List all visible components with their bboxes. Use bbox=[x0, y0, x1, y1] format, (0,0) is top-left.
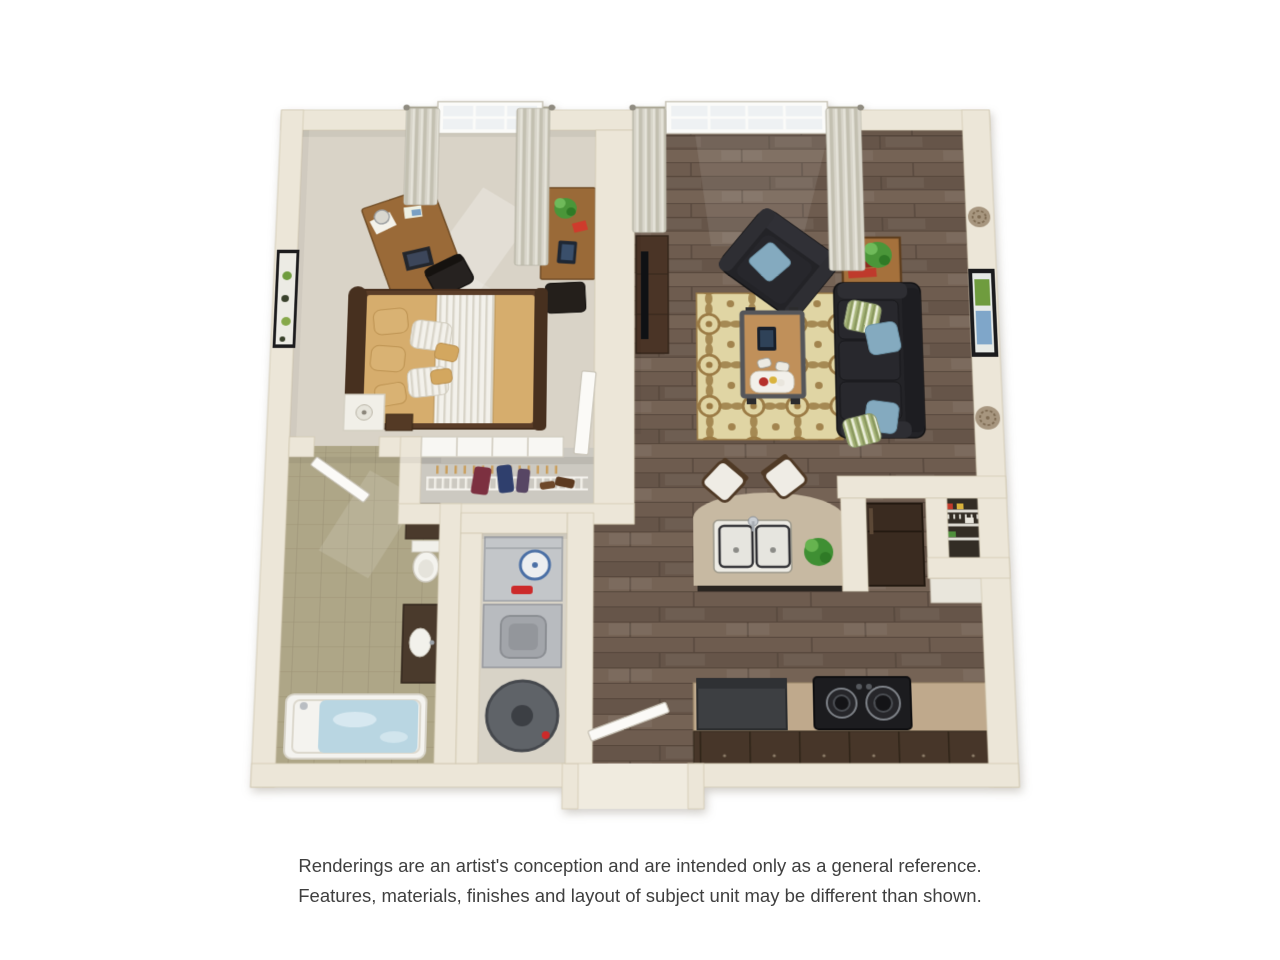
hardwood-floor-main bbox=[624, 122, 999, 768]
wood-side-stand bbox=[386, 414, 413, 430]
curtain-panel bbox=[826, 108, 865, 270]
wall-bedroom-south-a bbox=[289, 437, 315, 457]
toilet bbox=[411, 541, 441, 582]
detergent bbox=[511, 586, 533, 594]
tv-console bbox=[636, 236, 668, 353]
disclaimer-line-2: Features, materials, finishes and layout… bbox=[0, 881, 1280, 911]
kitchen-counter-run bbox=[693, 677, 994, 764]
hanging-clothes-navy bbox=[496, 464, 514, 493]
wall-bedroom-living bbox=[594, 130, 635, 524]
disclaimer-line-1: Renderings are an artist's conception an… bbox=[0, 851, 1280, 881]
double-sink bbox=[713, 517, 791, 573]
sofa bbox=[834, 283, 926, 449]
closet-sliding-doors bbox=[421, 437, 563, 457]
disclaimer: Renderings are an artist's conception an… bbox=[0, 851, 1280, 911]
nightstand bbox=[343, 394, 384, 430]
wall-utility-north bbox=[461, 513, 568, 533]
living-window bbox=[666, 102, 828, 134]
wall-pantry-south bbox=[928, 558, 1011, 579]
wall-kitchen-return bbox=[841, 498, 869, 591]
page: Renderings are an artist's conception an… bbox=[0, 0, 1280, 960]
vanity-sink bbox=[409, 628, 431, 657]
game-controller bbox=[775, 361, 790, 372]
tan-pillow bbox=[369, 345, 406, 372]
base-cabinets bbox=[694, 731, 995, 764]
wall-south-left bbox=[251, 764, 573, 788]
porch-stub-left bbox=[562, 764, 578, 809]
curtain-panel bbox=[514, 108, 550, 265]
curtain-panel bbox=[633, 108, 667, 232]
wall-utility-west bbox=[456, 533, 482, 763]
entry-porch-floor bbox=[562, 764, 704, 809]
blue-pillow bbox=[864, 321, 902, 356]
wall-utility-east bbox=[565, 513, 593, 764]
breakfast-island bbox=[693, 493, 846, 592]
utility-appliances bbox=[481, 537, 563, 751]
footboard bbox=[533, 288, 548, 430]
washer bbox=[484, 537, 563, 601]
living-wall-art bbox=[968, 269, 998, 357]
floor-plan-render bbox=[0, 68, 1280, 953]
wall-closet-west bbox=[399, 437, 422, 506]
tv-screen bbox=[641, 251, 649, 339]
dryer bbox=[482, 605, 561, 668]
bathtub bbox=[284, 694, 427, 758]
bath-water bbox=[318, 700, 419, 753]
vanity bbox=[401, 605, 438, 683]
refrigerator bbox=[866, 504, 925, 586]
hanging-clothes-purple bbox=[516, 468, 531, 493]
tan-pillow bbox=[373, 307, 409, 335]
accent-pillow bbox=[430, 368, 453, 385]
porch-stub-right bbox=[688, 764, 704, 809]
coffee-table bbox=[742, 307, 804, 404]
water-heater bbox=[486, 681, 558, 751]
wall-south-right bbox=[694, 764, 1020, 788]
wall-kitchen-north bbox=[837, 476, 1006, 498]
bedroom-wall-art bbox=[273, 250, 300, 348]
cooktop bbox=[813, 677, 911, 729]
secondary-desk-chair bbox=[545, 282, 586, 314]
curtain-panel bbox=[404, 108, 440, 205]
